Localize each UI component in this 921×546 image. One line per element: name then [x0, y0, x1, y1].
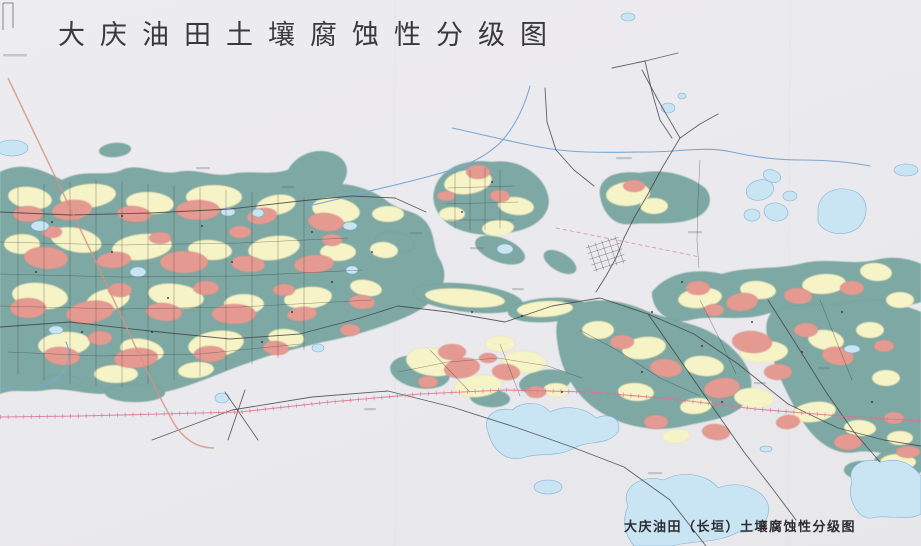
map-caption: 大庆油田（长垣）土壤腐蚀性分级图	[624, 516, 856, 535]
scanned-map-page: 大庆油田土壤腐蚀性分级图	[0, 0, 921, 546]
map-canvas	[0, 0, 921, 546]
illegible-corner-text	[3, 54, 27, 57]
corner-registration-mark	[3, 3, 27, 57]
